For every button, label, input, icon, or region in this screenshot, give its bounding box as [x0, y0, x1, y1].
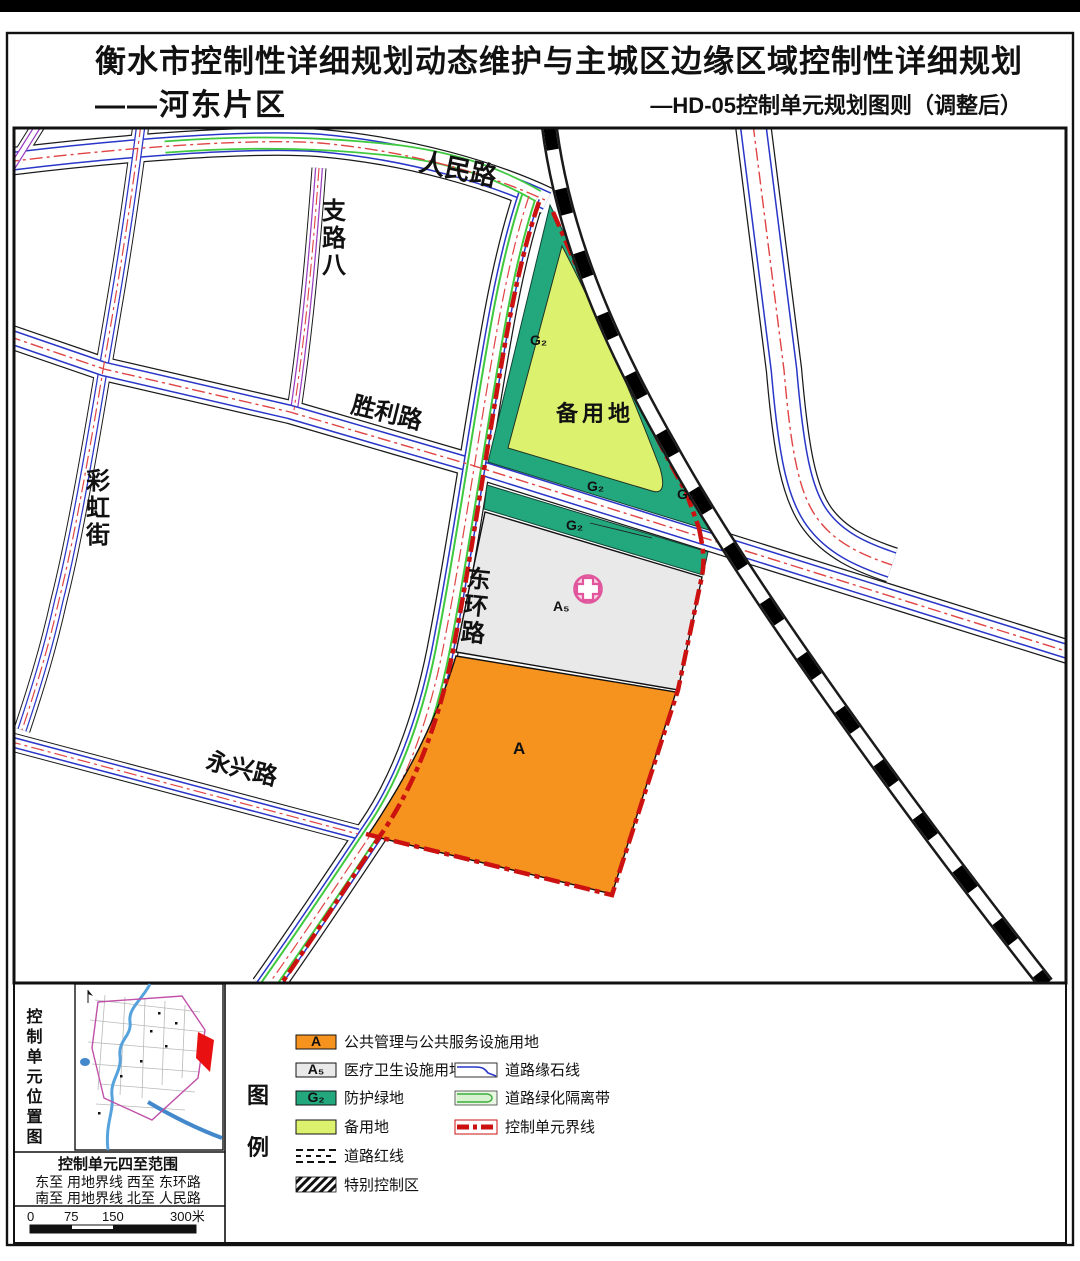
- road-label-zhiluba: 支路八: [318, 198, 346, 279]
- a-label: A: [513, 739, 525, 758]
- zone-public-service-a: [368, 656, 676, 894]
- scan-top-strip: [0, 0, 1080, 12]
- locator-map: [75, 984, 223, 1150]
- legend-label-a: 公共管理与公共服务设施用地: [344, 1034, 539, 1051]
- scale-tick-300: 300米: [170, 1209, 205, 1224]
- map-canvas: 备用地 G₂ G₂ G₂ G₂ A₅ A 人民路 支路八 胜利路 彩虹街 东环路…: [6, 124, 1072, 990]
- hospital-icon: [575, 576, 602, 603]
- g2-label-south: G₂: [587, 478, 604, 494]
- legend: A 公共管理与公共服务设施用地 A₅ 医疗卫生设施用地 G₂ 防护绿地 备用地 …: [296, 1033, 610, 1194]
- road-label-yongxing: 永兴路: [204, 747, 282, 792]
- road-label-renmin: 人民路: [417, 147, 501, 193]
- district-subtitle: ——河东片区: [95, 88, 287, 122]
- legend-swatch-road-redline: [296, 1149, 336, 1163]
- plan-sheet: 衡水市控制性详细规划动态维护与主城区边缘区域控制性详细规划 ——河东片区 —HD…: [0, 0, 1080, 1261]
- scale-tick-75: 75: [64, 1209, 78, 1224]
- extent-title: 控制单元四至范围: [58, 1155, 178, 1173]
- legend-label-road-redline: 道路红线: [344, 1148, 404, 1165]
- g2-label-west: G₂: [530, 332, 547, 348]
- page-title: 衡水市控制性详细规划动态维护与主城区边缘区域控制性详细规划: [95, 44, 1023, 79]
- legend-label-a5: 医疗卫生设施用地: [344, 1062, 464, 1079]
- scale-tick-0: 0: [27, 1209, 34, 1224]
- road-label-caihong: 彩虹街: [82, 468, 111, 549]
- legend-header-tu: 图: [247, 1083, 269, 1108]
- sheet-code-label: —HD-05控制单元规划图则（调整后）: [650, 93, 1022, 118]
- legend-label-curb-line: 道路缘石线: [505, 1062, 580, 1079]
- g2-label-east: G₂: [677, 486, 694, 502]
- legend-header-li: 例: [247, 1135, 269, 1160]
- legend-label-special-zone: 特别控制区: [344, 1177, 419, 1194]
- legend-swatch-green-belt: [455, 1091, 497, 1105]
- legend-swatch-reserve: [296, 1120, 336, 1134]
- legend-label-green-belt: 道路绿化隔离带: [505, 1090, 610, 1107]
- legend-code-a5: A₅: [308, 1061, 325, 1077]
- extent-row-2: 南至 用地界线 北至 人民路: [35, 1190, 201, 1206]
- locator-lake: [80, 1058, 90, 1066]
- legend-code-g2: G₂: [307, 1089, 324, 1105]
- legend-label-g2: 防护绿地: [344, 1090, 404, 1107]
- legend-swatch-unit-boundary: [455, 1120, 497, 1134]
- a5-label: A₅: [553, 598, 570, 614]
- legend-swatch-special-zone: [296, 1177, 336, 1192]
- plan-map-svg: 衡水市控制性详细规划动态维护与主城区边缘区域控制性详细规划 ——河东片区 —HD…: [0, 0, 1080, 1261]
- scale-tick-150: 150: [102, 1209, 124, 1224]
- g2-label-strip: G₂: [566, 517, 583, 533]
- reserve-land-label: 备用地: [555, 401, 634, 426]
- legend-label-unit-boundary: 控制单元界线: [505, 1119, 595, 1136]
- legend-swatch-curb-line: [455, 1063, 497, 1077]
- legend-label-reserve: 备用地: [344, 1119, 389, 1136]
- extent-row-1: 东至 用地界线 西至 东环路: [35, 1174, 201, 1190]
- locator-title: 控制单元位置图: [24, 1007, 43, 1148]
- scale-bar: 0 75 150 300米: [27, 1209, 205, 1233]
- legend-code-a: A: [311, 1033, 321, 1049]
